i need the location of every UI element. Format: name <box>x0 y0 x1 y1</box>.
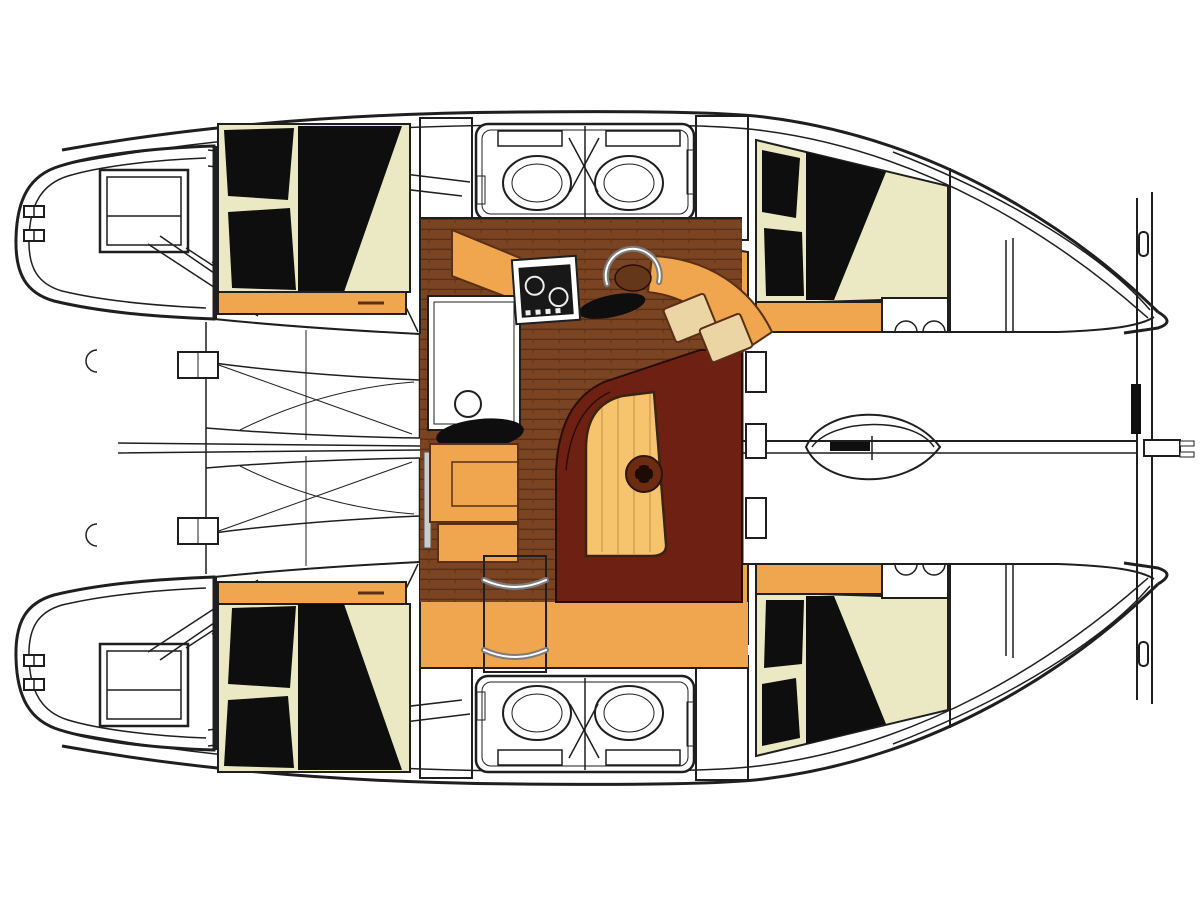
salon-window <box>746 498 766 538</box>
bow-cleat <box>1139 642 1148 666</box>
vanity-fixture <box>606 131 680 146</box>
salon-window <box>746 424 766 458</box>
pillow <box>228 606 296 688</box>
stove <box>512 256 580 324</box>
aft-salon-floor <box>420 602 748 668</box>
starboard-forward-cabin-berth <box>756 564 948 756</box>
bow-cleat <box>1139 232 1148 256</box>
berth-shelf <box>756 564 882 594</box>
berth-shelf <box>756 302 882 332</box>
vanity-fixture <box>606 750 680 765</box>
transom-window <box>100 644 188 726</box>
refrigerator <box>430 444 518 522</box>
aft-cockpit <box>86 319 420 577</box>
hull-wood-panel <box>696 656 748 780</box>
anchor-roller <box>1144 440 1180 456</box>
foredeck-trampoline <box>742 415 1137 480</box>
port-forward-cabin-berth <box>756 140 948 332</box>
pillow <box>762 678 800 746</box>
pillow <box>764 228 804 296</box>
starboard-bathroom <box>476 676 695 772</box>
salon-table <box>586 392 666 556</box>
vanity-fixture <box>498 131 562 146</box>
pillow <box>762 150 800 218</box>
salon-window <box>746 352 766 392</box>
port-aft-cabin-berth <box>218 124 410 314</box>
pillow <box>764 600 804 668</box>
catamaran-layout-diagram <box>0 0 1200 899</box>
pillow <box>224 128 294 200</box>
salon <box>420 218 772 672</box>
forward-crossbeam <box>1006 192 1194 704</box>
pillow <box>224 696 294 768</box>
deck-plan-svg <box>0 0 1200 899</box>
vanity-fixture <box>498 750 562 765</box>
galley-sink <box>455 391 481 417</box>
pillow <box>228 208 296 290</box>
port-bathroom <box>476 124 695 220</box>
transom-window <box>100 170 188 252</box>
starboard-aft-cabin-berth <box>218 582 410 772</box>
